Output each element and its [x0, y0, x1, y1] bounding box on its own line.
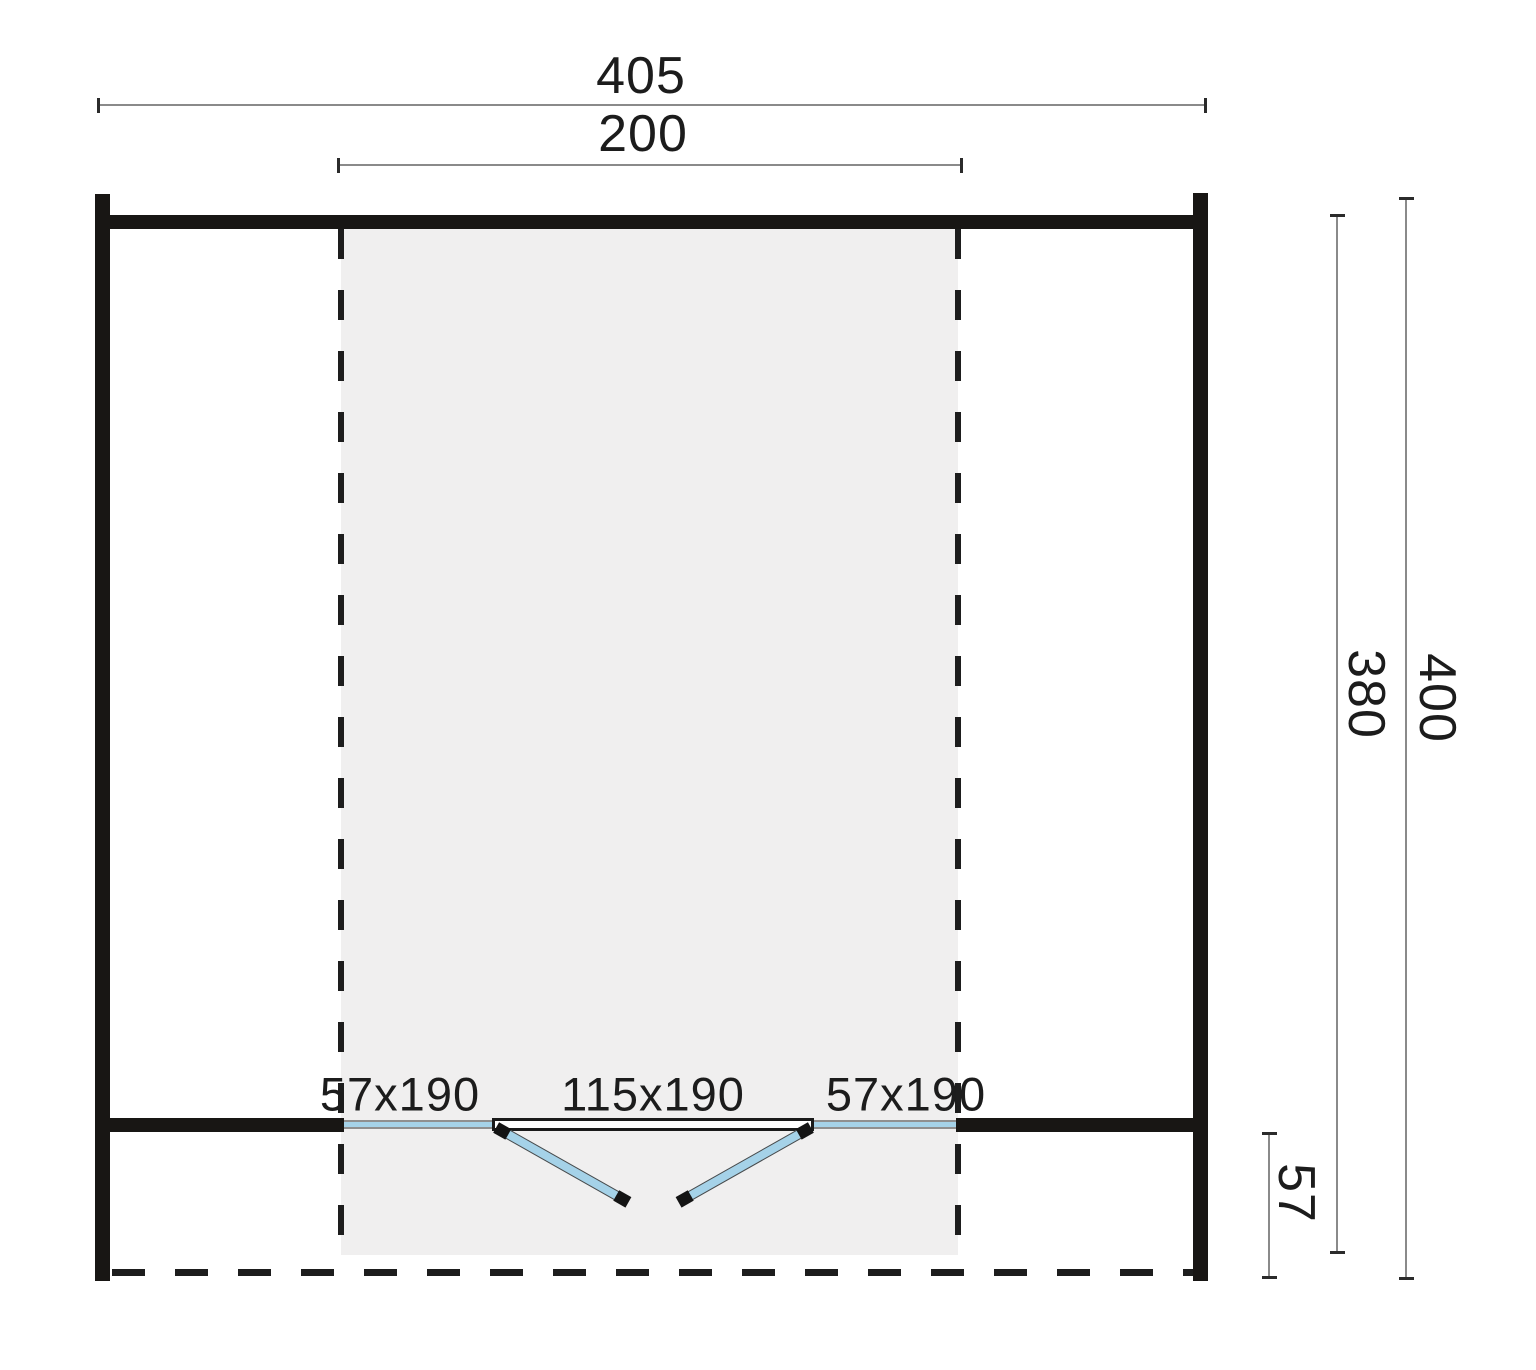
wall-right: [1193, 193, 1208, 1281]
dim-label-right-outer: 400: [1411, 653, 1463, 743]
dim-label-right-inner: 380: [1340, 649, 1392, 739]
dim-label-top-inner: 200: [598, 108, 688, 160]
floor-plan-diagram: 405 200 380 400 57 57x190 115x190 57x190: [0, 0, 1536, 1370]
dashed-line-bottom: [112, 1269, 1193, 1276]
label-door: 115x190: [561, 1071, 745, 1118]
dim-label-top-outer: 405: [596, 50, 686, 102]
wall-top: [108, 215, 1195, 229]
window-right: [814, 1120, 956, 1129]
dim-label-bottom-right: 57: [1270, 1163, 1322, 1223]
window-left: [344, 1120, 492, 1129]
label-window-right: 57x190: [826, 1071, 986, 1118]
wall-front-right: [956, 1118, 1195, 1132]
dim-line-right-outer: [1405, 198, 1407, 1279]
wall-front-left: [108, 1118, 344, 1132]
label-window-left: 57x190: [320, 1071, 480, 1118]
dim-line-top-inner: [338, 164, 962, 166]
